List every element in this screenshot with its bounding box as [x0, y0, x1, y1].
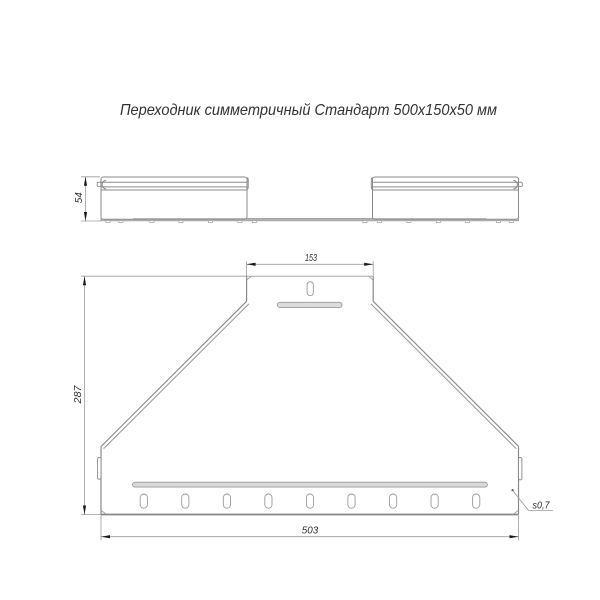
svg-text:503: 503	[302, 526, 319, 537]
svg-text:54: 54	[74, 192, 85, 203]
svg-text:Переходник симметричный Станда: Переходник симметричный Стандарт 500х150…	[120, 102, 497, 119]
svg-text:153: 153	[305, 253, 317, 264]
svg-text:s0,7: s0,7	[533, 500, 550, 511]
svg-text:287: 287	[73, 385, 84, 405]
